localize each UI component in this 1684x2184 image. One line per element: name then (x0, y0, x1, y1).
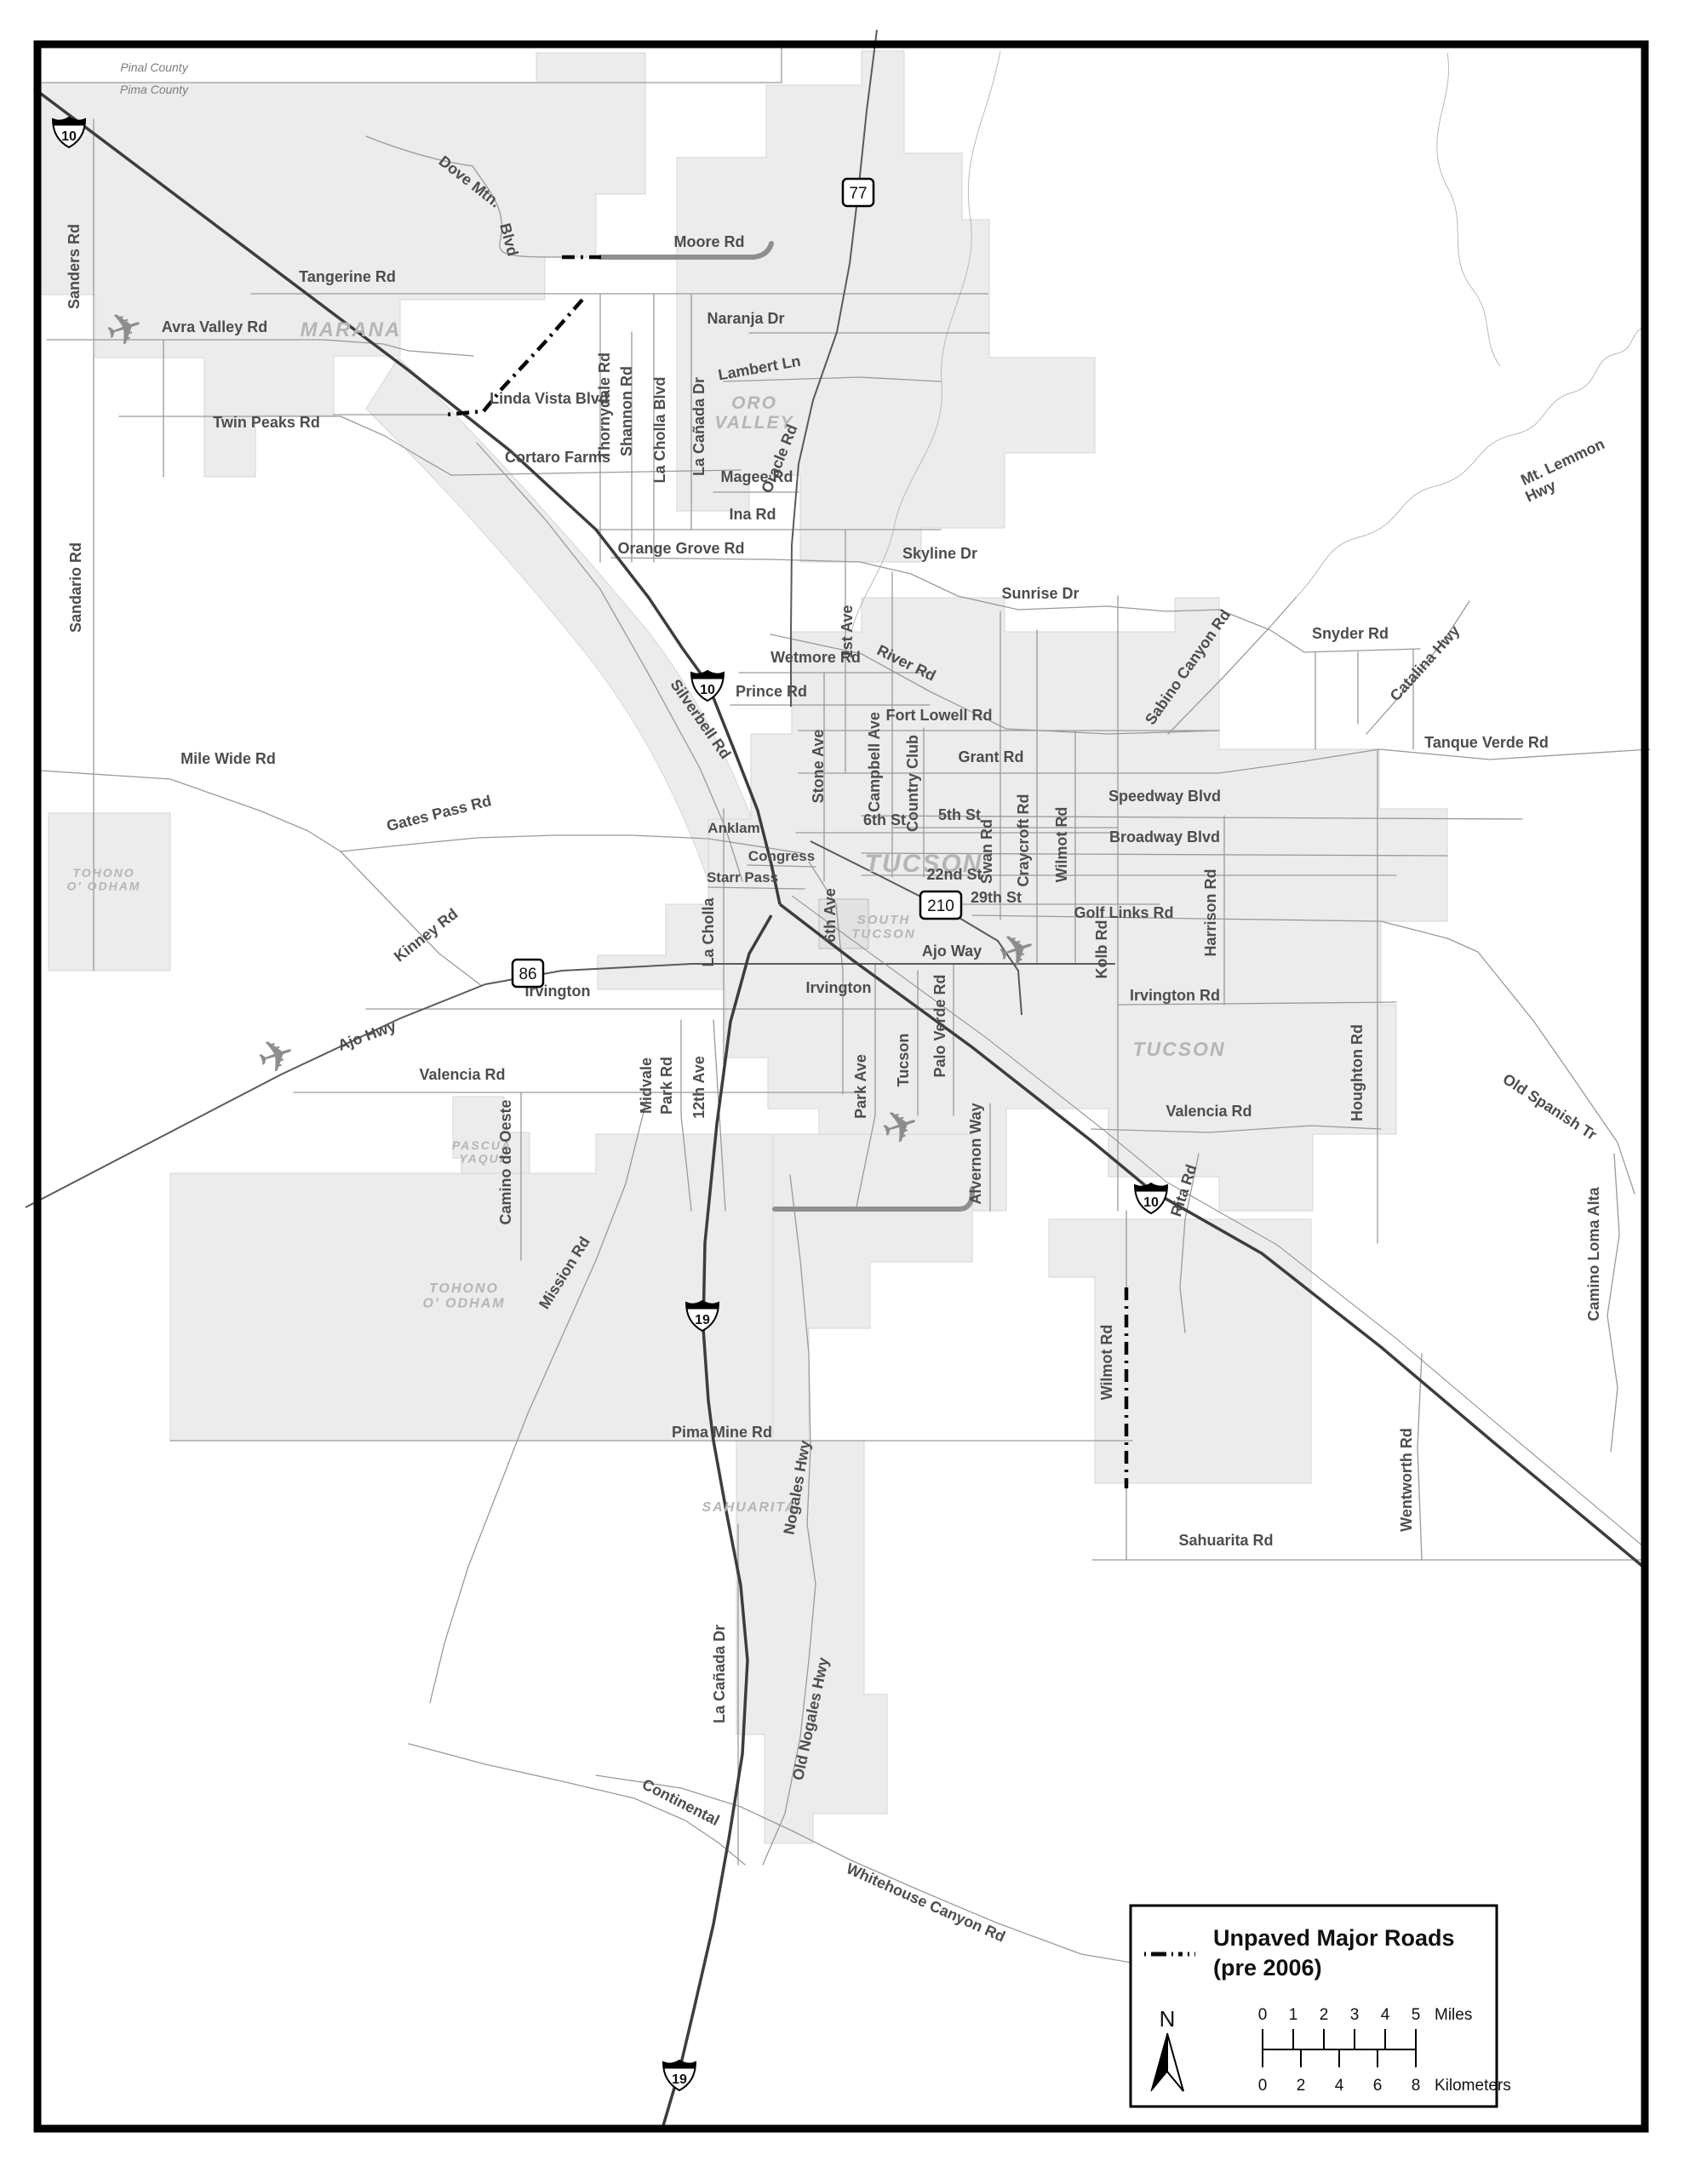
scale-mile-tick: 3 (1350, 2006, 1360, 2024)
road-label: Prince Rd (736, 683, 807, 700)
road-label: Harrison Rd (1202, 868, 1219, 956)
road-label: Palo Verde Rd (931, 974, 948, 1077)
road-label: 12th Ave (690, 1056, 707, 1119)
road-label: Sanders Rd (66, 224, 83, 309)
road-label: Gates Pass Rd (385, 792, 493, 834)
road-label: Shannon Rd (618, 366, 635, 456)
road-label: Wilmot Rd (1098, 1325, 1115, 1401)
road-label: Ina Rd (729, 506, 776, 523)
road-label: Twin Peaks Rd (213, 414, 320, 431)
scale-km-tick: 8 (1412, 2077, 1421, 2095)
area-label: MARANA (301, 318, 402, 341)
road-label: Thornydale Rd (596, 353, 613, 460)
interstate-10-shield: 10 (1135, 1184, 1167, 1213)
svg-text:77: 77 (849, 185, 867, 203)
road-label: Fort Lowell Rd (886, 707, 993, 724)
road-label: Stone Ave (810, 730, 827, 804)
road-label: Sahuarita Rd (1178, 1532, 1273, 1549)
scale-mile-tick: 1 (1289, 2006, 1298, 2024)
scale-km-tick: 2 (1297, 2077, 1306, 2095)
area-label: SAHUARITA (702, 1500, 796, 1515)
area-wilmot-block (1049, 1219, 1311, 1483)
state-route-86-shield: 86 (513, 960, 543, 987)
road-label: 22nd St (926, 866, 982, 883)
road-label: Houghton Rd (1349, 1024, 1366, 1121)
road-label: Kolb Rd (1093, 920, 1110, 979)
road-label: Wetmore Rd (770, 649, 861, 666)
road-label: Linda Vista Blvd (490, 390, 609, 407)
county-label: Pima County (120, 83, 189, 96)
svg-text:10: 10 (700, 683, 715, 697)
legend-title-line1: Unpaved Major Roads (1213, 1925, 1455, 1951)
scale-miles-unit: Miles (1435, 2006, 1472, 2024)
road-label: Camino de Oeste (497, 1099, 514, 1224)
road-label: Magee Rd (720, 468, 793, 485)
road-label: Ajo Hwy (335, 1017, 398, 1054)
map-page: Pinal CountyPima CountyMARANAOROVALLEYTU… (0, 0, 1684, 2180)
road-label: Wentworth Rd (1398, 1428, 1415, 1532)
road-label: Old Spanish Tr (1500, 1070, 1600, 1144)
svg-text:86: 86 (518, 966, 536, 983)
road-label: Avra Valley Rd (162, 318, 267, 335)
north-label: N (1160, 2006, 1176, 2032)
road-label: Park Ave (852, 1054, 869, 1119)
road-label: Mile Wide Rd (180, 750, 276, 767)
road-label: Valencia Rd (419, 1066, 505, 1083)
area-label: TUCSON (1132, 1038, 1225, 1060)
scale-km-tick: 4 (1335, 2077, 1344, 2095)
svg-text:19: 19 (695, 1313, 710, 1327)
road-snyder (1304, 649, 1420, 652)
area-oro-valley (677, 51, 1095, 562)
scale-mile-tick: 4 (1381, 2006, 1390, 2024)
road-old-spanish (1381, 921, 1635, 1194)
interstate-10-shield: 10 (691, 671, 724, 701)
svg-text:19: 19 (672, 2072, 687, 2087)
state-route-210-shield: 210 (920, 891, 961, 919)
area-label: TOHONOO' ODHAM (67, 866, 141, 892)
road-label: Skyline Dr (902, 545, 977, 562)
road-label: Whitehouse Canyon Rd (844, 1860, 1008, 1945)
road-label: Tucson (895, 1034, 912, 1087)
road-label: Irvington (806, 979, 872, 996)
road-label: 6th Ave (822, 888, 839, 943)
legend: Unpaved Major Roads(pre 2006)N0123450246… (1131, 1906, 1511, 2107)
svg-text:10: 10 (61, 129, 77, 144)
road-label: Moore Rd (674, 233, 745, 250)
interstate-19-shield: 19 (663, 2061, 696, 2090)
road-label: Park Rd (658, 1057, 675, 1115)
scale-mile-tick: 5 (1412, 2006, 1421, 2024)
road-label: Pima Mine Rd (672, 1424, 772, 1441)
road-label: Cortaro Farms (505, 449, 610, 466)
scale-km-unit: Kilometers (1435, 2077, 1511, 2095)
road-label: Craycroft Rd (1015, 794, 1032, 886)
road-label: Tanque Verde Rd (1424, 734, 1549, 751)
road-label: Midvale (638, 1058, 655, 1114)
tucson-roads-map: Pinal CountyPima CountyMARANAOROVALLEYTU… (0, 0, 1684, 2180)
road-label: Valencia Rd (1166, 1103, 1252, 1120)
road-label: Country Club (904, 735, 921, 832)
airplane-icon: ✈ (251, 1028, 301, 1086)
road-label: Camino Loma Alta (1585, 1186, 1602, 1321)
road-label: Golf Links Rd (1074, 904, 1174, 921)
road-wentworth (1418, 1354, 1422, 1560)
road-label: La Cañada Dr (690, 377, 707, 476)
road-label: Irvington Rd (1130, 987, 1220, 1004)
road-label: Campbell Ave (866, 712, 883, 812)
road-label: Anklam (707, 820, 759, 836)
road-label: 6th St (863, 811, 906, 828)
area-label: SOUTHTUCSON (851, 913, 915, 942)
road-label: Catalina Hwy (1387, 622, 1463, 705)
road-label: Continental (639, 1775, 722, 1829)
county-label: Pinal County (120, 60, 188, 74)
road-label: Speedway Blvd (1108, 788, 1221, 805)
legend-title-line2: (pre 2006) (1213, 1955, 1322, 1981)
scale-mile-tick: 2 (1320, 2006, 1329, 2024)
road-label: La Cholla (700, 897, 717, 967)
road-label: Alvernon Way (967, 1103, 984, 1204)
scale-km-tick: 6 (1373, 2077, 1383, 2095)
svg-text:10: 10 (1143, 1195, 1159, 1210)
road-label: 29th St (971, 889, 1022, 906)
road-label: Snyder Rd (1312, 625, 1389, 642)
road-label: Starr Pass (707, 869, 778, 886)
road-label: Mt. Lemmon (1518, 435, 1607, 489)
road-label: Ajo Way (922, 943, 982, 960)
road-label: La Cholla Blvd (651, 376, 668, 483)
forest-boundary (1296, 328, 1643, 598)
road-gates-pass (341, 835, 708, 851)
road-label: Broadway Blvd (1109, 828, 1220, 846)
road-label: La Cañada Dr (711, 1625, 728, 1723)
road-label: Congress (748, 848, 815, 864)
road-orange-grove (611, 558, 770, 559)
wash-northeast (1437, 53, 1500, 366)
area-label: TOHONOO' ODHAM (422, 1281, 505, 1311)
scale-mile-tick: 0 (1258, 2006, 1268, 2024)
road-label: Sunrise Dr (1001, 585, 1079, 602)
road-label: 5th St (938, 806, 981, 823)
road-label: Wilmot Rd (1053, 807, 1070, 883)
road-label: Tangerine Rd (299, 268, 396, 285)
svg-text:210: 210 (927, 897, 954, 915)
road-label: Orange Grove Rd (617, 540, 744, 557)
road-label: Naranja Dr (707, 310, 784, 327)
road-label: Grant Rd (958, 748, 1023, 765)
road-camino-loma-alta (1607, 1154, 1619, 1452)
scale-km-tick: 0 (1258, 2077, 1268, 2095)
state-route-77-shield: 77 (843, 179, 874, 206)
area-marana (40, 53, 645, 477)
road-label: Sandario Rd (67, 542, 84, 633)
